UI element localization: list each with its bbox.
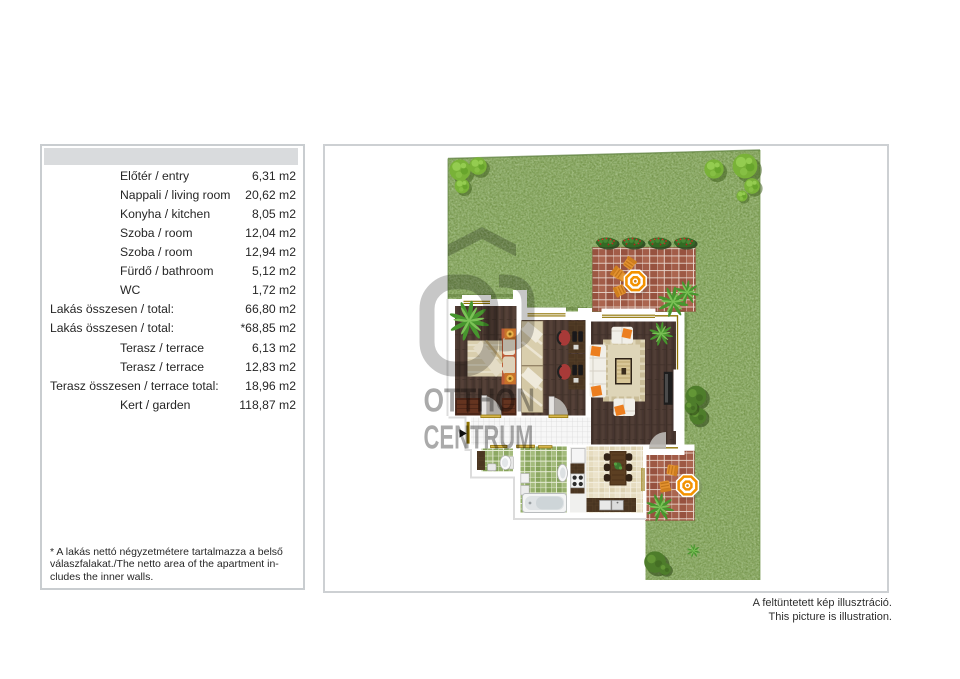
svg-text:CENTRUM: CENTRUM	[424, 418, 534, 455]
svg-text:OTTHON: OTTHON	[424, 382, 536, 419]
